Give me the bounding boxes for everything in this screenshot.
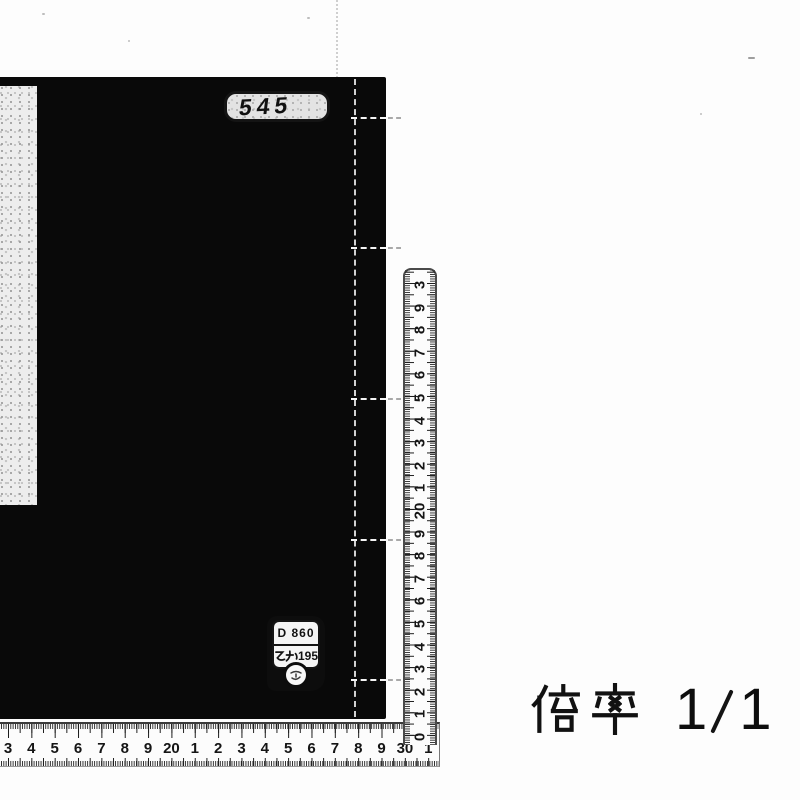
paper-fold-line — [336, 0, 338, 78]
book-cover — [0, 77, 386, 719]
ruler-number: 9 — [377, 739, 385, 759]
vertical-ruler: 3987654321209876543210 — [403, 268, 437, 745]
magnification-numerator: 1 — [675, 686, 707, 735]
ruler-number: 4 — [413, 642, 428, 650]
ruler-number: 1 — [413, 484, 428, 492]
magnification-denominator: 1 — [739, 686, 771, 735]
ruler-number: 0 — [413, 733, 428, 741]
ruler-number: 7 — [97, 739, 105, 759]
seal-marks — [287, 666, 305, 684]
binding-stitch-tail — [388, 247, 401, 249]
ruler-number: 8 — [413, 326, 428, 334]
library-id-plate: D 860 195 — [267, 616, 325, 691]
ruler-number: 2 — [413, 462, 428, 470]
ruler-number: 20 — [413, 503, 428, 520]
ruler-number: 7 — [331, 739, 339, 759]
ruler-number: 7 — [413, 349, 428, 357]
ruler-number: 4 — [413, 416, 428, 424]
ruler-number: 6 — [74, 739, 82, 759]
binding-stitch-tail — [388, 398, 401, 400]
ruler-number: 5 — [51, 739, 59, 759]
noise-speck — [128, 40, 130, 42]
ruler-number: 1 — [191, 739, 199, 759]
ruler-number: 2 — [413, 688, 428, 696]
scanned-book-photograph: 545 D 860 195 3 — [0, 0, 800, 800]
binding-stitch-tail — [388, 679, 401, 681]
ruler-number: 6 — [307, 739, 315, 759]
horizontal-ruler-ticks-top — [0, 724, 439, 739]
ruler-number: 5 — [413, 620, 428, 628]
kanji-bai-glyph — [530, 683, 582, 735]
ruler-number: 9 — [144, 739, 152, 759]
call-number-text: 545 — [238, 94, 294, 120]
ruler-number: 9 — [413, 303, 428, 311]
book-title-slip — [0, 86, 37, 505]
ruler-number: 3 — [413, 439, 428, 447]
binding-stitch-tail — [388, 539, 401, 541]
noise-speck — [700, 113, 702, 115]
id-plate-line1: D 860 — [274, 622, 318, 644]
round-seal-stamp-icon — [283, 662, 309, 688]
ruler-number: 8 — [413, 552, 428, 560]
ruler-number: 6 — [413, 371, 428, 379]
ruler-number: 3 — [4, 739, 12, 759]
kanji-ritsu-glyph — [589, 683, 641, 735]
ruler-number: 5 — [284, 739, 292, 759]
horizontal-ruler: 345678920123456789301 — [0, 722, 440, 767]
binding-stitch — [351, 539, 386, 541]
binding-stitch — [351, 117, 386, 119]
binding-stitch-tail — [388, 117, 401, 119]
ruler-number: 8 — [354, 739, 362, 759]
ruler-number: 8 — [121, 739, 129, 759]
ruler-number: 7 — [413, 575, 428, 583]
noise-speck — [42, 13, 45, 15]
ruler-number: 3 — [413, 281, 428, 289]
ruler-number: 6 — [413, 597, 428, 605]
ruler-number: 9 — [413, 529, 428, 537]
call-number-label: 545 — [224, 91, 330, 122]
binding-stitch — [351, 247, 386, 249]
noise-speck — [748, 57, 755, 59]
ruler-number: 20 — [163, 739, 180, 759]
ruler-number: 2 — [214, 739, 222, 759]
ruler-number: 5 — [413, 394, 428, 402]
ruler-number: 4 — [261, 739, 269, 759]
ruler-number: 3 — [413, 665, 428, 673]
fraction-slash — [711, 689, 734, 733]
noise-speck — [307, 17, 310, 19]
binding-stitch — [351, 679, 386, 681]
ruler-number: 3 — [237, 739, 245, 759]
ruler-number: 1 — [413, 710, 428, 718]
binding-stitch — [351, 398, 386, 400]
ruler-number: 4 — [27, 739, 35, 759]
id-plate-line2-number: 195 — [298, 649, 318, 663]
magnification-caption: 1 1 — [530, 681, 772, 735]
